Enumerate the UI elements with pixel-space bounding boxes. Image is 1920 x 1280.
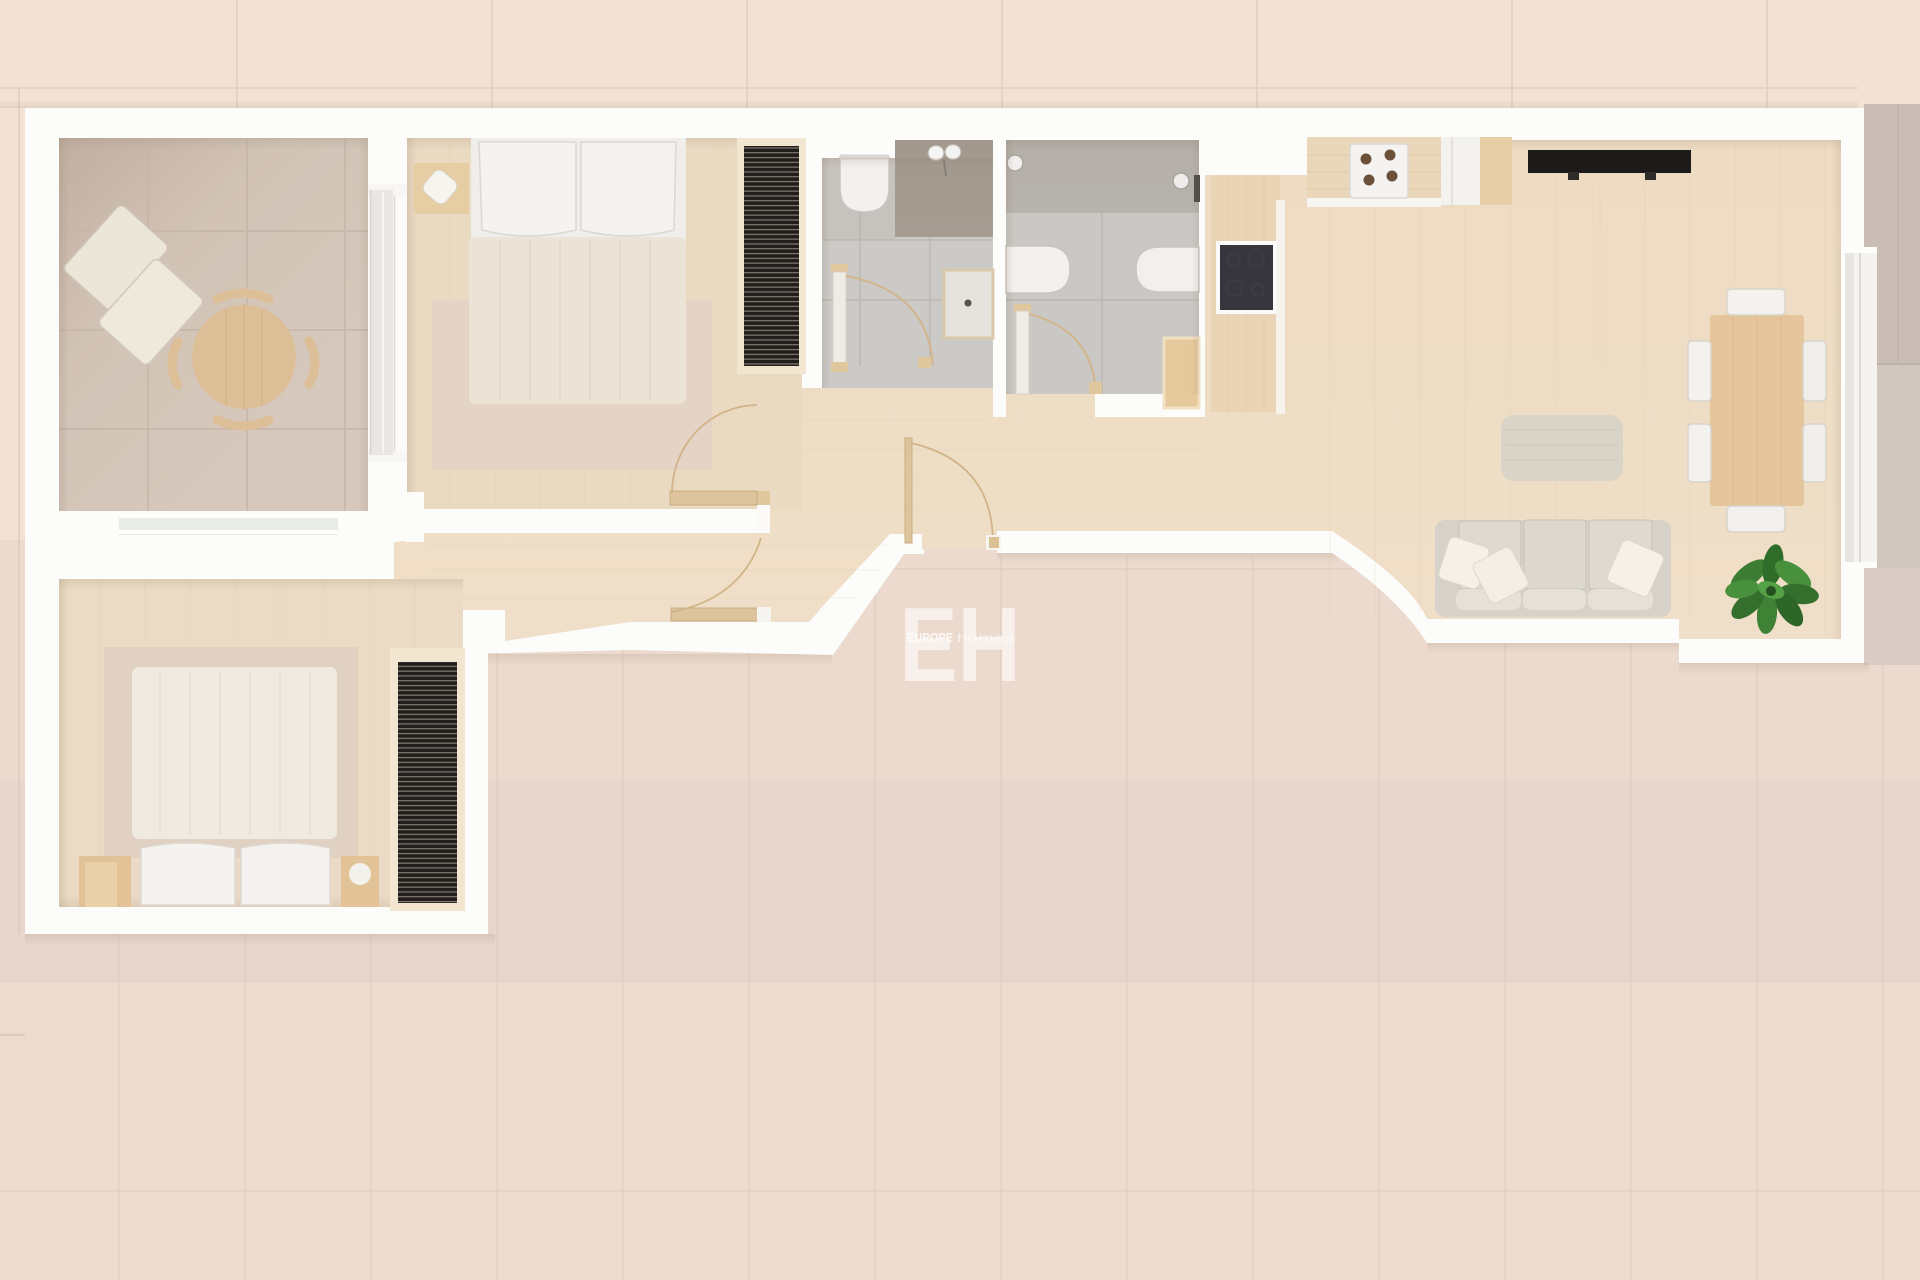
svg-text:EH: EH: [900, 586, 1021, 704]
svg-text:EUROPE: EUROPE: [907, 631, 953, 645]
svg-text:homes: homes: [957, 631, 1014, 645]
